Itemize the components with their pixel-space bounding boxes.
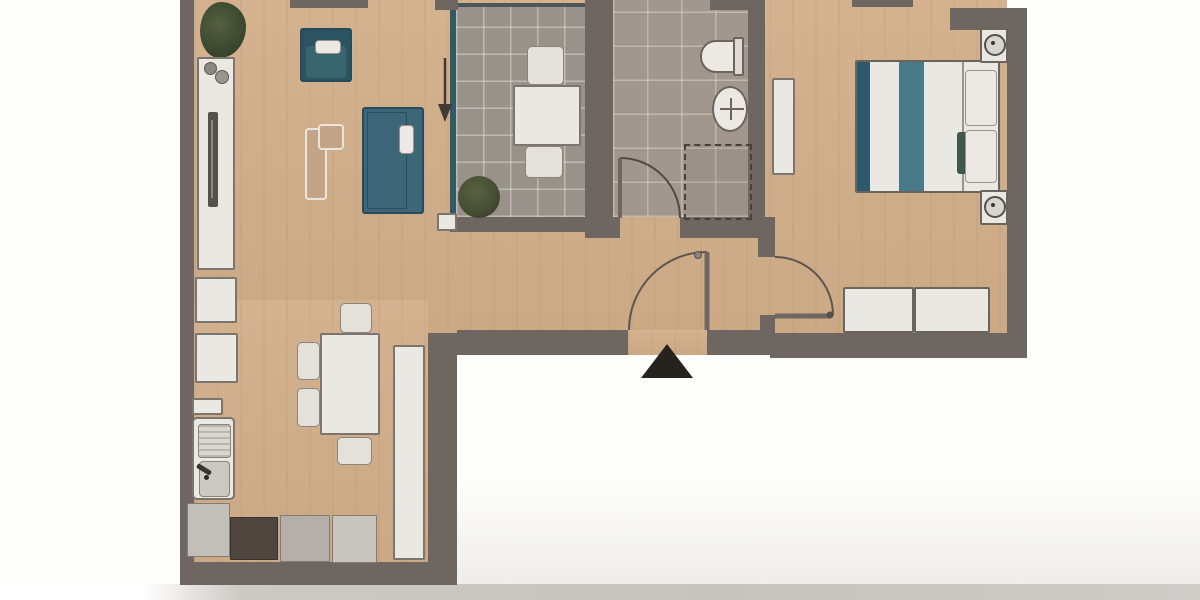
front-door-arc bbox=[629, 252, 707, 330]
apartment-floor-plan bbox=[180, 0, 1027, 585]
door-knob-icon bbox=[695, 252, 702, 259]
bathroom-door-arc bbox=[620, 158, 680, 218]
photo-edge-band bbox=[0, 584, 1200, 600]
entrance-triangle-marker bbox=[641, 344, 693, 378]
door-knob-icon bbox=[827, 312, 834, 319]
balcony-arrow-head-icon bbox=[438, 104, 452, 122]
door-swing-overlay bbox=[180, 0, 1027, 585]
bedroom-door-arc bbox=[775, 257, 833, 315]
floor-plan-photo bbox=[0, 0, 1200, 600]
